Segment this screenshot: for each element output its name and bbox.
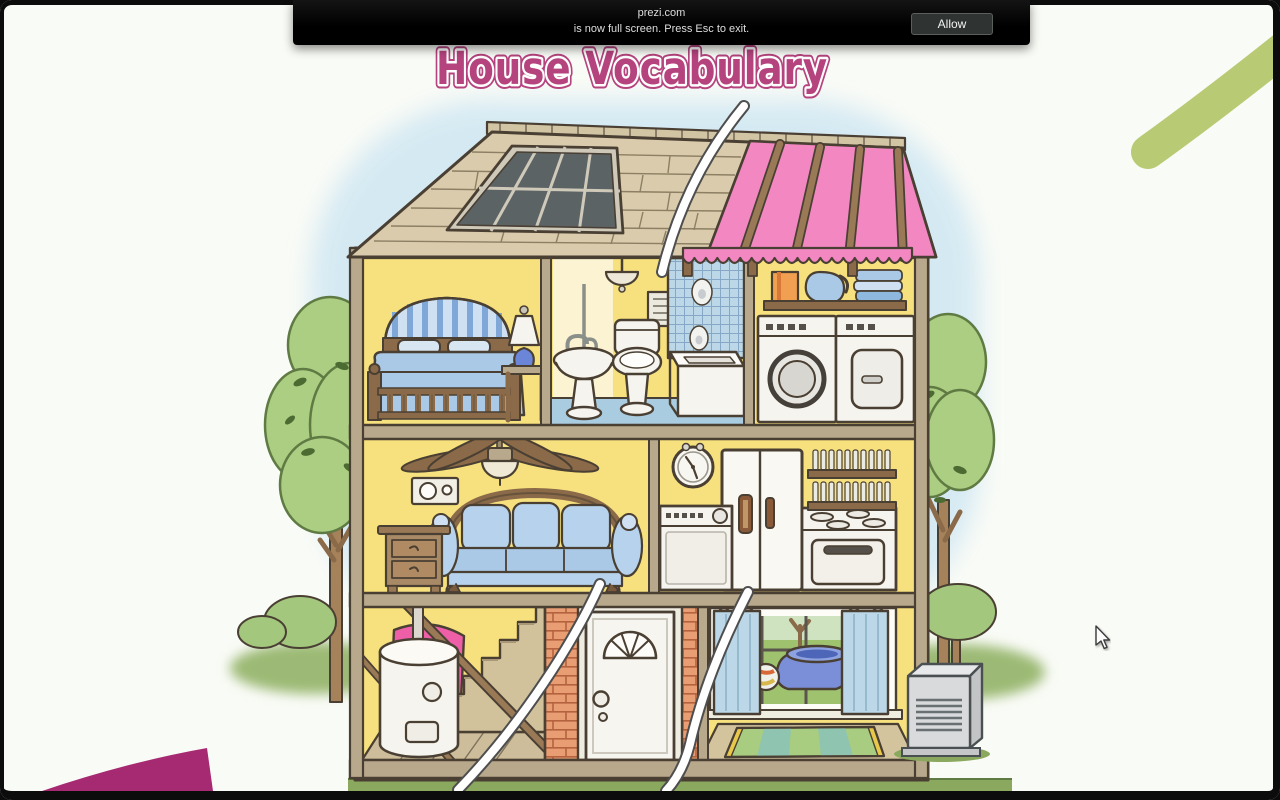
kiddie-pool [777,646,848,689]
dryer [836,316,914,422]
front-door [586,612,674,760]
corner-swoosh-green [1148,42,1280,152]
room-entry [545,600,700,760]
prezi-fullscreen-stage: House Vocabulary House Vocabulary House … [0,0,1280,800]
refrigerator [722,450,802,590]
end-table [378,526,450,593]
laundry-shelf [764,270,906,310]
bathtub [670,352,744,416]
thermostat [412,478,458,504]
corner-wedge-pink [42,748,213,791]
shower [668,258,744,358]
deadbolt [599,713,607,721]
page-title: House Vocabulary House Vocabulary House … [436,42,828,95]
stove [802,508,896,590]
room-laundry [758,270,914,422]
house-illustration: House Vocabulary House Vocabulary House … [0,0,1280,800]
dishwasher [660,506,732,590]
air-conditioner [894,664,990,762]
room-kitchen [660,444,896,591]
doorknob [594,692,609,707]
striped-rug [725,727,884,757]
mouse-cursor [1096,626,1110,649]
washer [758,316,836,422]
allow-button[interactable]: Allow [911,13,993,35]
fullscreen-notification-bar: prezi.com is now full screen. Press Esc … [293,0,1030,45]
house-cutaway [348,106,936,791]
room-bedroom [368,298,548,420]
svg-text:House Vocabulary: House Vocabulary [436,42,828,95]
